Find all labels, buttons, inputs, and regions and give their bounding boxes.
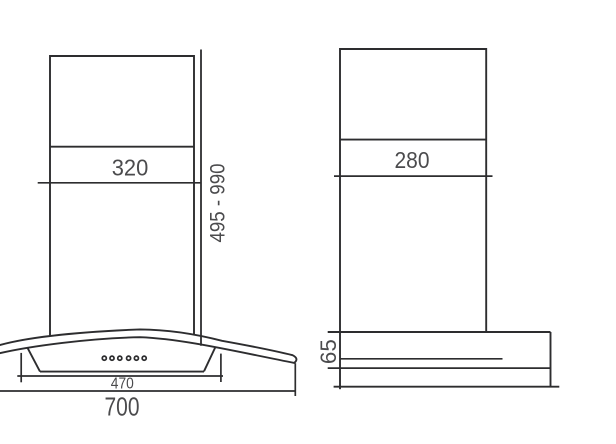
svg-text:495 - 990: 495 - 990 bbox=[205, 163, 229, 242]
svg-text:470: 470 bbox=[111, 376, 134, 393]
svg-text:65: 65 bbox=[316, 339, 341, 364]
svg-text:700: 700 bbox=[105, 394, 140, 422]
svg-text:320: 320 bbox=[112, 155, 149, 181]
svg-text:280: 280 bbox=[395, 147, 430, 173]
